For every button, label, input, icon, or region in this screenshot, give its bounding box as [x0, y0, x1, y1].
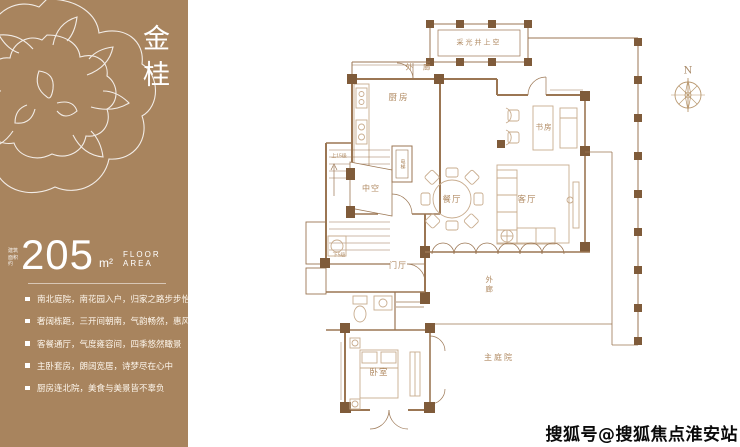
label-void: 中空 — [362, 185, 380, 193]
compass-north-label: N — [684, 66, 693, 77]
south-veranda — [425, 243, 612, 324]
label-stairs-down: 下5级 — [333, 254, 346, 259]
compass-icon — [671, 78, 705, 112]
watermark-text: 搜狐号@搜狐焦点淮安站 — [546, 420, 739, 445]
page: 金桂 建筑面积约 205 m² FLOOR AREA 南北庭院，南花园入户，归家… — [0, 0, 740, 447]
label-dining: 餐厅 — [442, 195, 461, 204]
floor-plan-drawing — [0, 0, 740, 447]
label-kitchen: 厨房 — [388, 93, 409, 102]
label-corridor-right: 外廊 — [485, 276, 493, 295]
label-bedroom: 卧室 — [369, 368, 388, 377]
label-lightwell: 采光井上空 — [457, 40, 502, 47]
label-living: 客厅 — [517, 195, 536, 204]
label-foyer: 门厅 — [389, 262, 407, 270]
label-courtyard: 主庭院 — [484, 354, 514, 362]
living-furniture — [497, 165, 579, 244]
label-elevator: 电梯 — [400, 159, 405, 169]
label-study: 书房 — [536, 123, 553, 131]
label-stairs-up: 上15级 — [331, 155, 347, 160]
label-corridor-top: 外 廊 — [405, 63, 434, 71]
bedroom-room — [340, 323, 445, 429]
main-block-walls — [347, 74, 590, 252]
staircase — [326, 143, 392, 264]
